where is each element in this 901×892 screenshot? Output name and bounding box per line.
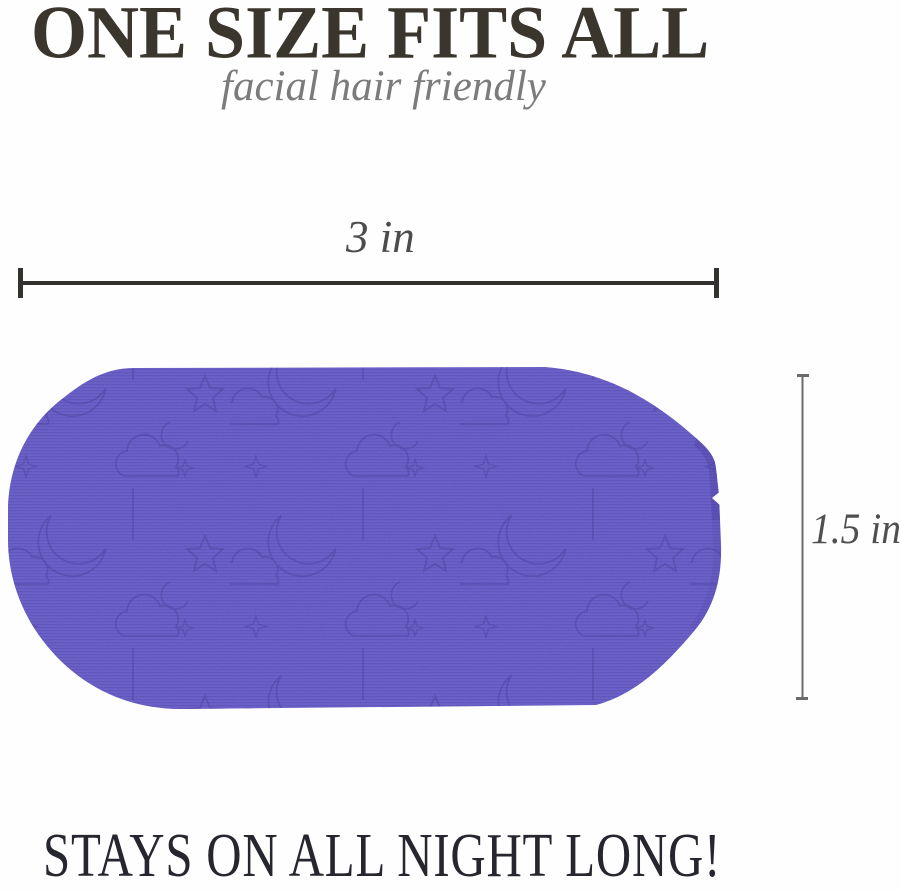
svg-text:1.5 in: 1.5 in [811,504,901,552]
